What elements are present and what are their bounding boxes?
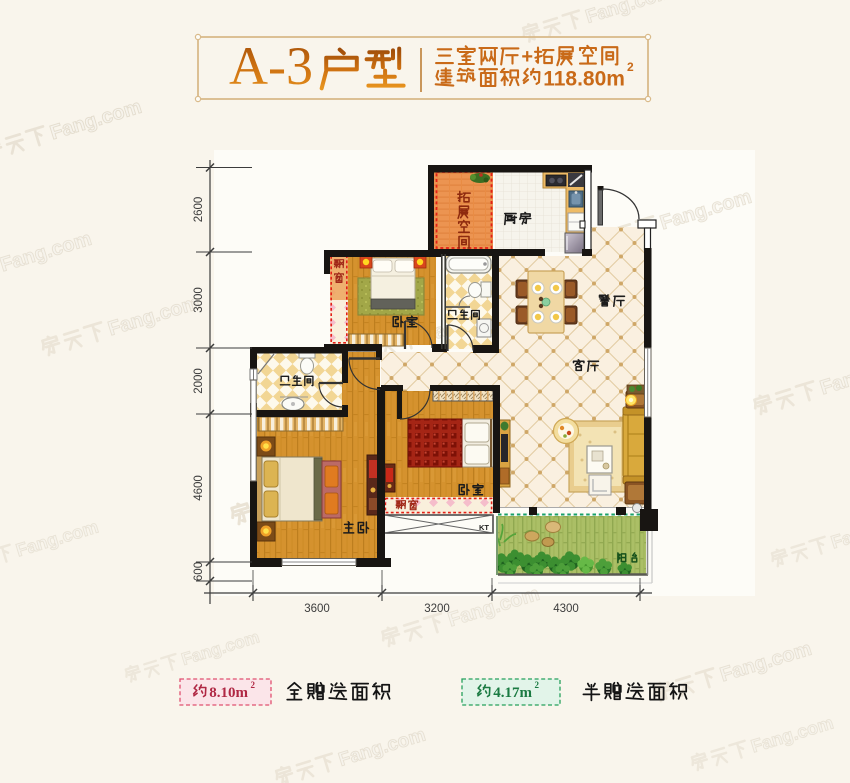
svg-text:4.17m: 4.17m [493,685,532,701]
svg-text:2: 2 [535,680,540,690]
svg-text:2: 2 [251,680,256,690]
svg-text:A-3: A-3 [229,36,313,96]
svg-text:118.80m: 118.80m [543,67,625,90]
svg-text:8.10m: 8.10m [209,685,248,701]
svg-text:3600: 3600 [304,603,330,615]
svg-text:2000: 2000 [193,368,205,394]
svg-text:2: 2 [627,60,634,74]
svg-text:4600: 4600 [193,475,205,501]
svg-text:3200: 3200 [424,603,450,615]
svg-text:600: 600 [193,562,205,581]
svg-text:2600: 2600 [193,197,205,223]
svg-text:4300: 4300 [553,603,579,615]
svg-text:3000: 3000 [193,287,205,313]
svg-text:+: + [521,46,533,68]
svg-text:KT: KT [479,523,489,532]
